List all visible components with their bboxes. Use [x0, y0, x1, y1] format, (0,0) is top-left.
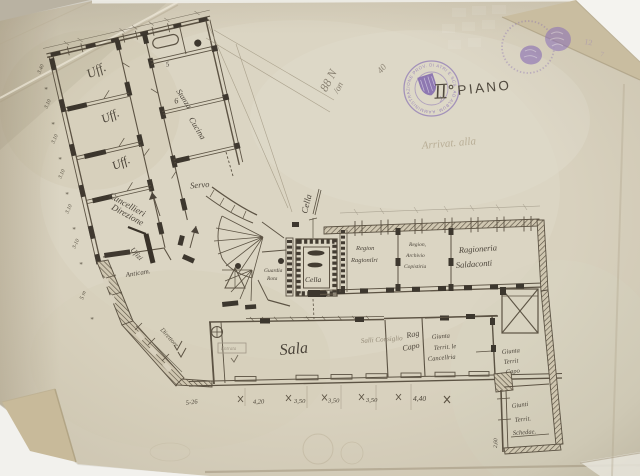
svg-text:Servo: Servo — [190, 179, 210, 191]
svg-text:*: * — [58, 156, 62, 164]
svg-text:*: * — [65, 191, 69, 199]
svg-text:Sala: Sala — [279, 340, 309, 359]
svg-text:*: * — [90, 316, 94, 324]
svg-text:*: * — [51, 121, 55, 129]
svg-text:2,60: 2,60 — [493, 438, 499, 448]
svg-text:Rota: Rota — [266, 276, 278, 282]
svg-text:4,20: 4,20 — [253, 398, 265, 406]
svg-text:Archivio: Archivio — [405, 253, 425, 259]
svg-text:3,50: 3,50 — [293, 398, 306, 405]
svg-text:Entrata: Entrata — [220, 347, 237, 352]
svg-text:*: * — [44, 86, 48, 94]
svg-text:Cella: Cella — [305, 275, 321, 284]
svg-text:Guardia: Guardia — [264, 268, 283, 274]
svg-text:3,50: 3,50 — [327, 398, 340, 405]
svg-text:Copistiria: Copistiria — [404, 264, 427, 270]
svg-text:12: 12 — [584, 37, 593, 47]
svg-text:*: * — [79, 261, 83, 269]
svg-text:4,40: 4,40 — [413, 394, 426, 403]
svg-text:*: * — [72, 226, 76, 234]
svg-text:Region,: Region, — [408, 242, 427, 248]
svg-text:Ragionilri: Ragionilri — [350, 257, 378, 264]
svg-text:Region: Region — [355, 245, 374, 252]
